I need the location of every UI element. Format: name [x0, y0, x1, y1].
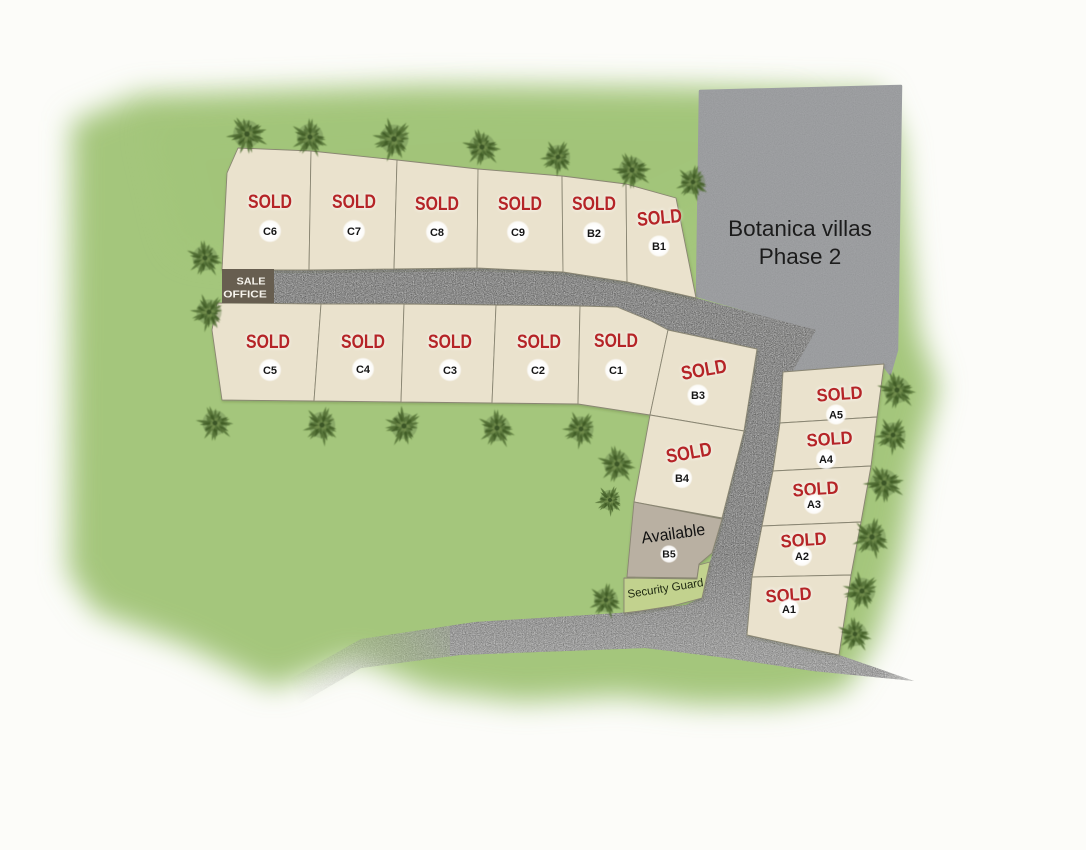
svg-text:C7: C7	[347, 226, 361, 238]
svg-text:SOLD: SOLD	[594, 330, 638, 352]
svg-text:B5: B5	[662, 549, 676, 561]
svg-text:B4: B4	[675, 473, 690, 485]
svg-text:C9: C9	[511, 227, 525, 239]
svg-text:C1: C1	[609, 365, 623, 377]
svg-text:SOLD: SOLD	[816, 382, 863, 405]
svg-text:SOLD: SOLD	[332, 191, 376, 213]
svg-text:SALE: SALE	[237, 277, 266, 288]
svg-text:SOLD: SOLD	[636, 205, 683, 231]
svg-text:SOLD: SOLD	[572, 193, 616, 215]
svg-text:C3: C3	[443, 365, 457, 377]
svg-text:Phase 2: Phase 2	[759, 244, 842, 269]
svg-text:A5: A5	[829, 409, 843, 421]
svg-text:C8: C8	[430, 227, 444, 239]
svg-text:C5: C5	[263, 365, 277, 377]
svg-text:A1: A1	[782, 604, 796, 616]
svg-text:SOLD: SOLD	[806, 427, 853, 450]
svg-text:A2: A2	[795, 551, 809, 563]
svg-text:SOLD: SOLD	[517, 331, 561, 353]
svg-text:Botanica villas: Botanica villas	[728, 216, 872, 241]
svg-text:SOLD: SOLD	[248, 191, 292, 213]
svg-text:A3: A3	[807, 499, 821, 511]
svg-text:SOLD: SOLD	[246, 331, 290, 353]
svg-text:A4: A4	[819, 454, 834, 466]
svg-text:SOLD: SOLD	[415, 193, 459, 215]
svg-text:SOLD: SOLD	[498, 193, 542, 215]
svg-text:B2: B2	[587, 228, 601, 240]
svg-text:B1: B1	[652, 241, 666, 253]
svg-text:C2: C2	[531, 365, 545, 377]
svg-text:C4: C4	[356, 364, 371, 376]
svg-text:B3: B3	[691, 390, 705, 402]
svg-text:SOLD: SOLD	[428, 331, 472, 353]
svg-text:SOLD: SOLD	[341, 331, 385, 353]
svg-text:C6: C6	[263, 226, 277, 238]
svg-text:OFFICE: OFFICE	[223, 290, 267, 301]
